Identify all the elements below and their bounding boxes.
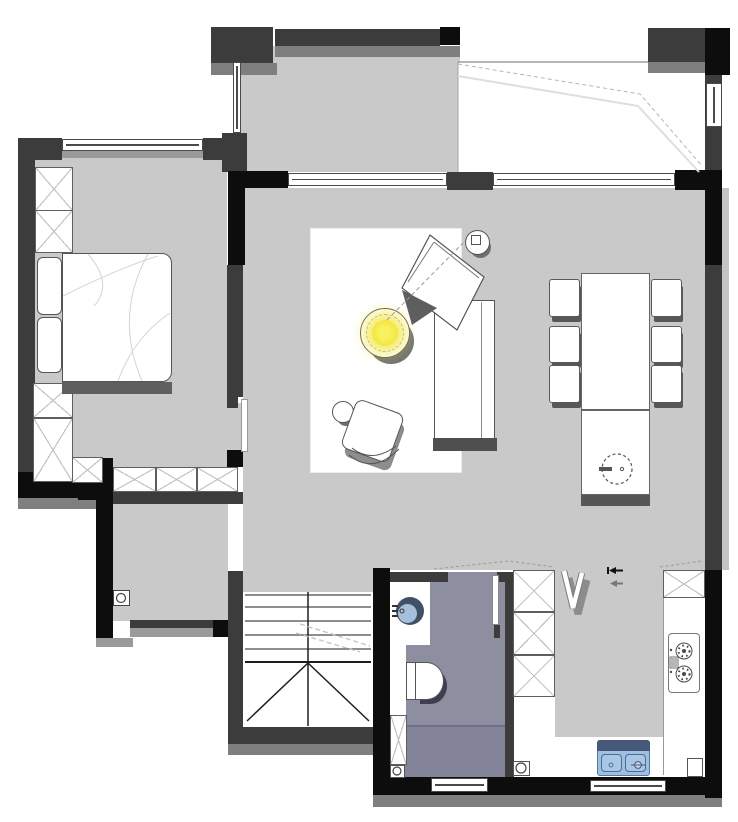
wall (705, 170, 722, 265)
shadow (228, 744, 388, 755)
wall (96, 458, 113, 638)
wall (211, 27, 273, 63)
sink-bowl (601, 754, 622, 772)
wall (227, 265, 243, 397)
table-lamp (372, 320, 398, 346)
pillow (37, 257, 62, 315)
dining-chair (549, 365, 580, 403)
wardrobe (72, 457, 103, 483)
kitchen-cabinet (513, 612, 555, 655)
wall (130, 620, 220, 628)
dining-chair (651, 279, 682, 317)
stair-top-floor (243, 570, 373, 592)
service-duct (687, 758, 703, 777)
shadow (211, 63, 277, 75)
flexroom-window (233, 62, 241, 133)
wall (705, 265, 722, 570)
balcony-floor (458, 62, 705, 172)
entry-door-marker (113, 590, 130, 606)
pillow (37, 317, 62, 373)
dining-chair (651, 365, 682, 403)
wall (35, 138, 62, 160)
wall (373, 568, 390, 795)
shadow (373, 795, 722, 807)
bathroom-cabinet (390, 715, 407, 765)
hall-closet (156, 467, 197, 492)
cooktop (668, 633, 700, 693)
wall (390, 572, 448, 582)
shadow (275, 46, 460, 57)
wall (228, 727, 388, 744)
bedroom-window (62, 139, 203, 151)
wall (275, 29, 440, 46)
shadow (96, 638, 133, 647)
wall (705, 28, 730, 75)
wardrobe (35, 167, 73, 211)
wall (494, 625, 500, 638)
wall (222, 133, 247, 172)
bath-drain-box (390, 765, 405, 778)
shadow (62, 151, 203, 158)
sink-bowl (625, 754, 646, 772)
wall (705, 570, 722, 798)
island-cabinet (581, 410, 650, 495)
wall (228, 571, 243, 744)
wall (228, 171, 288, 188)
wardrobe (35, 210, 73, 253)
shadow (648, 62, 705, 73)
kitchen-cabinet (513, 570, 555, 612)
sofa-body (434, 300, 495, 440)
bed (62, 253, 172, 382)
living-window-right (493, 173, 675, 186)
floor-plan (0, 0, 738, 822)
sofa-back-line (481, 302, 482, 438)
side-table-square (471, 235, 481, 245)
shower-zone (390, 725, 505, 777)
balcony-window (706, 83, 722, 127)
sofa-shadow (433, 438, 497, 451)
wall (228, 188, 245, 265)
bath-door (492, 575, 499, 625)
hall-closet (197, 467, 238, 492)
bedroom-door (241, 399, 248, 452)
wall (440, 27, 460, 45)
hall-closet (113, 467, 156, 492)
dining-chair (651, 326, 682, 363)
wall (113, 492, 243, 504)
kitchen-window (590, 780, 666, 792)
wardrobe (33, 418, 73, 482)
floor-drain-box (513, 761, 530, 776)
wash-basin-bowl (398, 604, 417, 623)
counter-edge (663, 598, 664, 775)
wall (227, 450, 243, 467)
shadow (722, 188, 729, 570)
wall (227, 397, 238, 408)
stair-well (243, 592, 373, 727)
hall-floor (113, 500, 228, 621)
kitchen-cabinet (663, 570, 705, 598)
vanity-side (390, 645, 406, 715)
wall (447, 172, 493, 190)
living-window-left (288, 173, 447, 186)
bathroom-window (431, 778, 488, 792)
kitchen-sink-band (597, 740, 650, 751)
kitchen-floor (555, 570, 663, 737)
bed-shadow (62, 382, 172, 394)
dining-chair (549, 326, 580, 363)
island-shadow (581, 495, 650, 506)
wall (373, 777, 722, 795)
wall (648, 28, 705, 62)
kitchen-cabinet (513, 655, 555, 697)
dining-chair (549, 279, 580, 317)
dining-table (581, 273, 650, 410)
